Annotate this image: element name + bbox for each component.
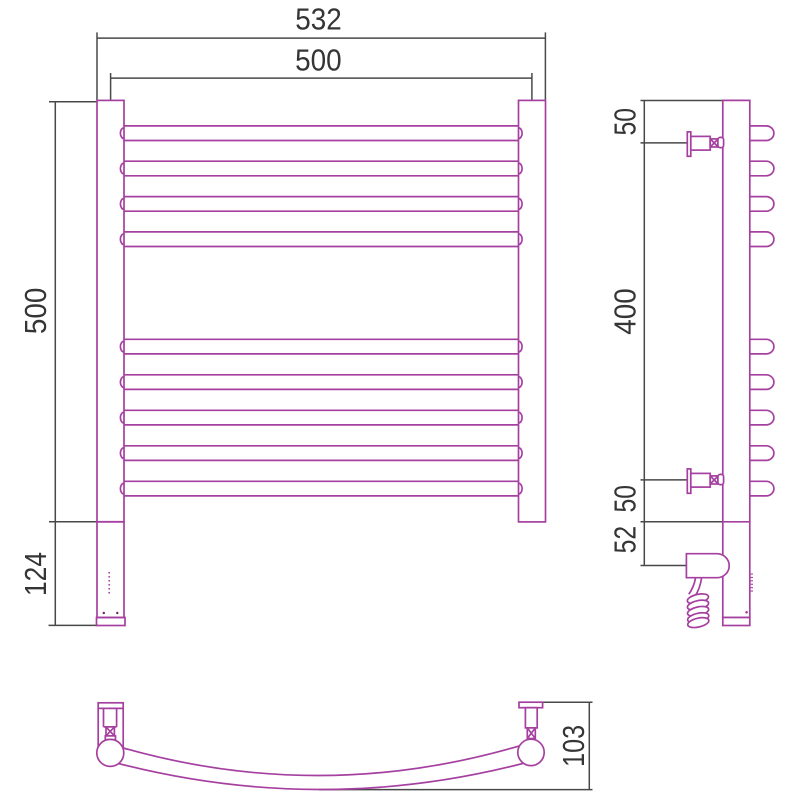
svg-text:500: 500 bbox=[295, 43, 342, 78]
svg-text:103: 103 bbox=[556, 725, 591, 767]
svg-text:124: 124 bbox=[18, 552, 53, 596]
svg-text:532: 532 bbox=[295, 1, 342, 36]
svg-text:500: 500 bbox=[18, 288, 53, 335]
svg-text:400: 400 bbox=[608, 288, 643, 335]
svg-text:50: 50 bbox=[608, 485, 643, 513]
svg-text:52: 52 bbox=[608, 526, 643, 554]
svg-text:50: 50 bbox=[608, 108, 643, 136]
